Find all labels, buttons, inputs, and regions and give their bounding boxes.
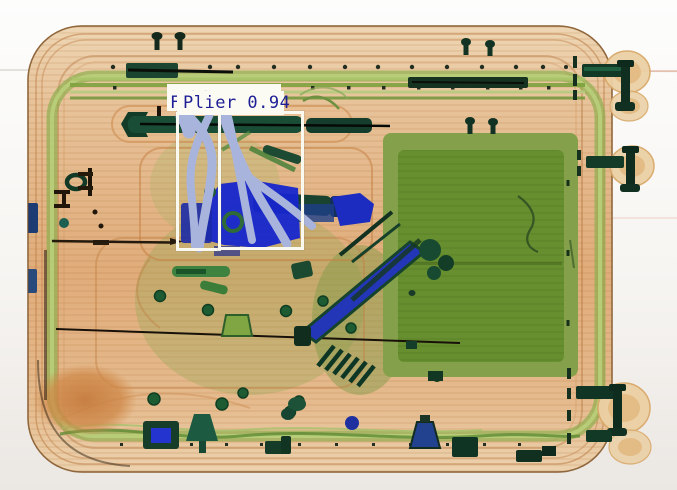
- detection-box-plier-secondary: [176, 112, 221, 251]
- small-metal-bit-2: [428, 371, 443, 381]
- xray-scan-view: F 0.94 ·· Plier 0.94: [0, 0, 677, 490]
- dense-organic-blob: [33, 364, 137, 436]
- suitcase-contents: [24, 26, 612, 472]
- detection-box-plier-primary: [218, 111, 304, 250]
- small-metal-bit: [406, 341, 417, 349]
- detection-label: Plier 0.94: [183, 92, 290, 114]
- suitcase-xray-illustration: [0, 0, 677, 490]
